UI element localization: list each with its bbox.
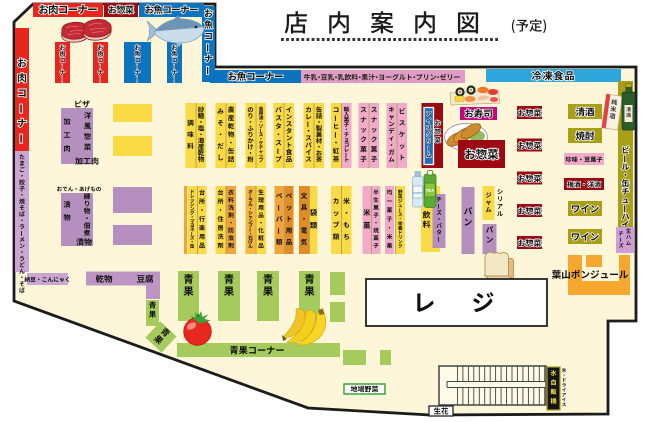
svg-text:water: water bbox=[413, 190, 423, 195]
svg-text:TEA: TEA bbox=[426, 188, 436, 193]
